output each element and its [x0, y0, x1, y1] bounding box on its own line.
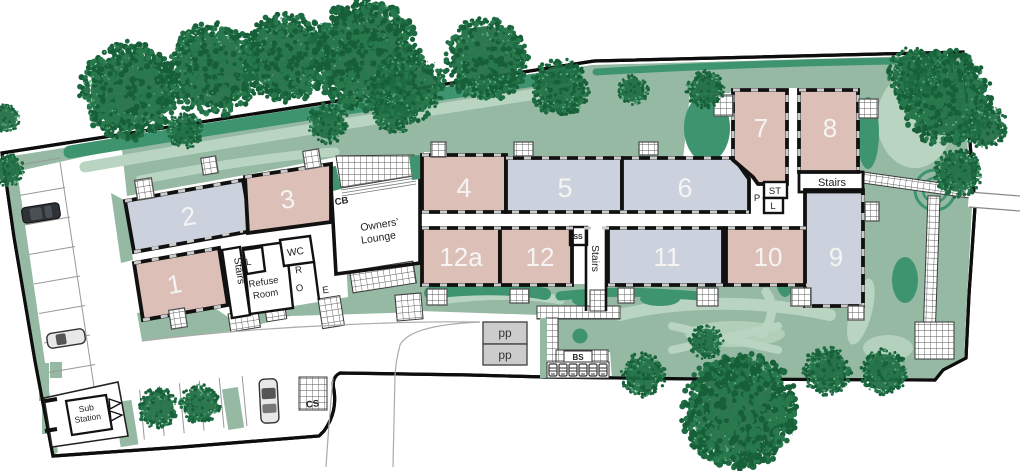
- svg-text:12a: 12a: [439, 242, 483, 272]
- svg-text:5: 5: [557, 173, 572, 203]
- svg-text:12: 12: [526, 242, 555, 272]
- svg-text:9: 9: [829, 242, 843, 272]
- svg-text:10: 10: [754, 242, 783, 272]
- svg-text:7: 7: [754, 113, 768, 143]
- svg-text:8: 8: [823, 113, 837, 143]
- svg-text:pp: pp: [498, 326, 512, 340]
- svg-text:pp: pp: [498, 348, 512, 362]
- svg-text:6: 6: [677, 173, 692, 203]
- svg-text:11: 11: [654, 242, 681, 272]
- svg-text:4: 4: [456, 173, 471, 203]
